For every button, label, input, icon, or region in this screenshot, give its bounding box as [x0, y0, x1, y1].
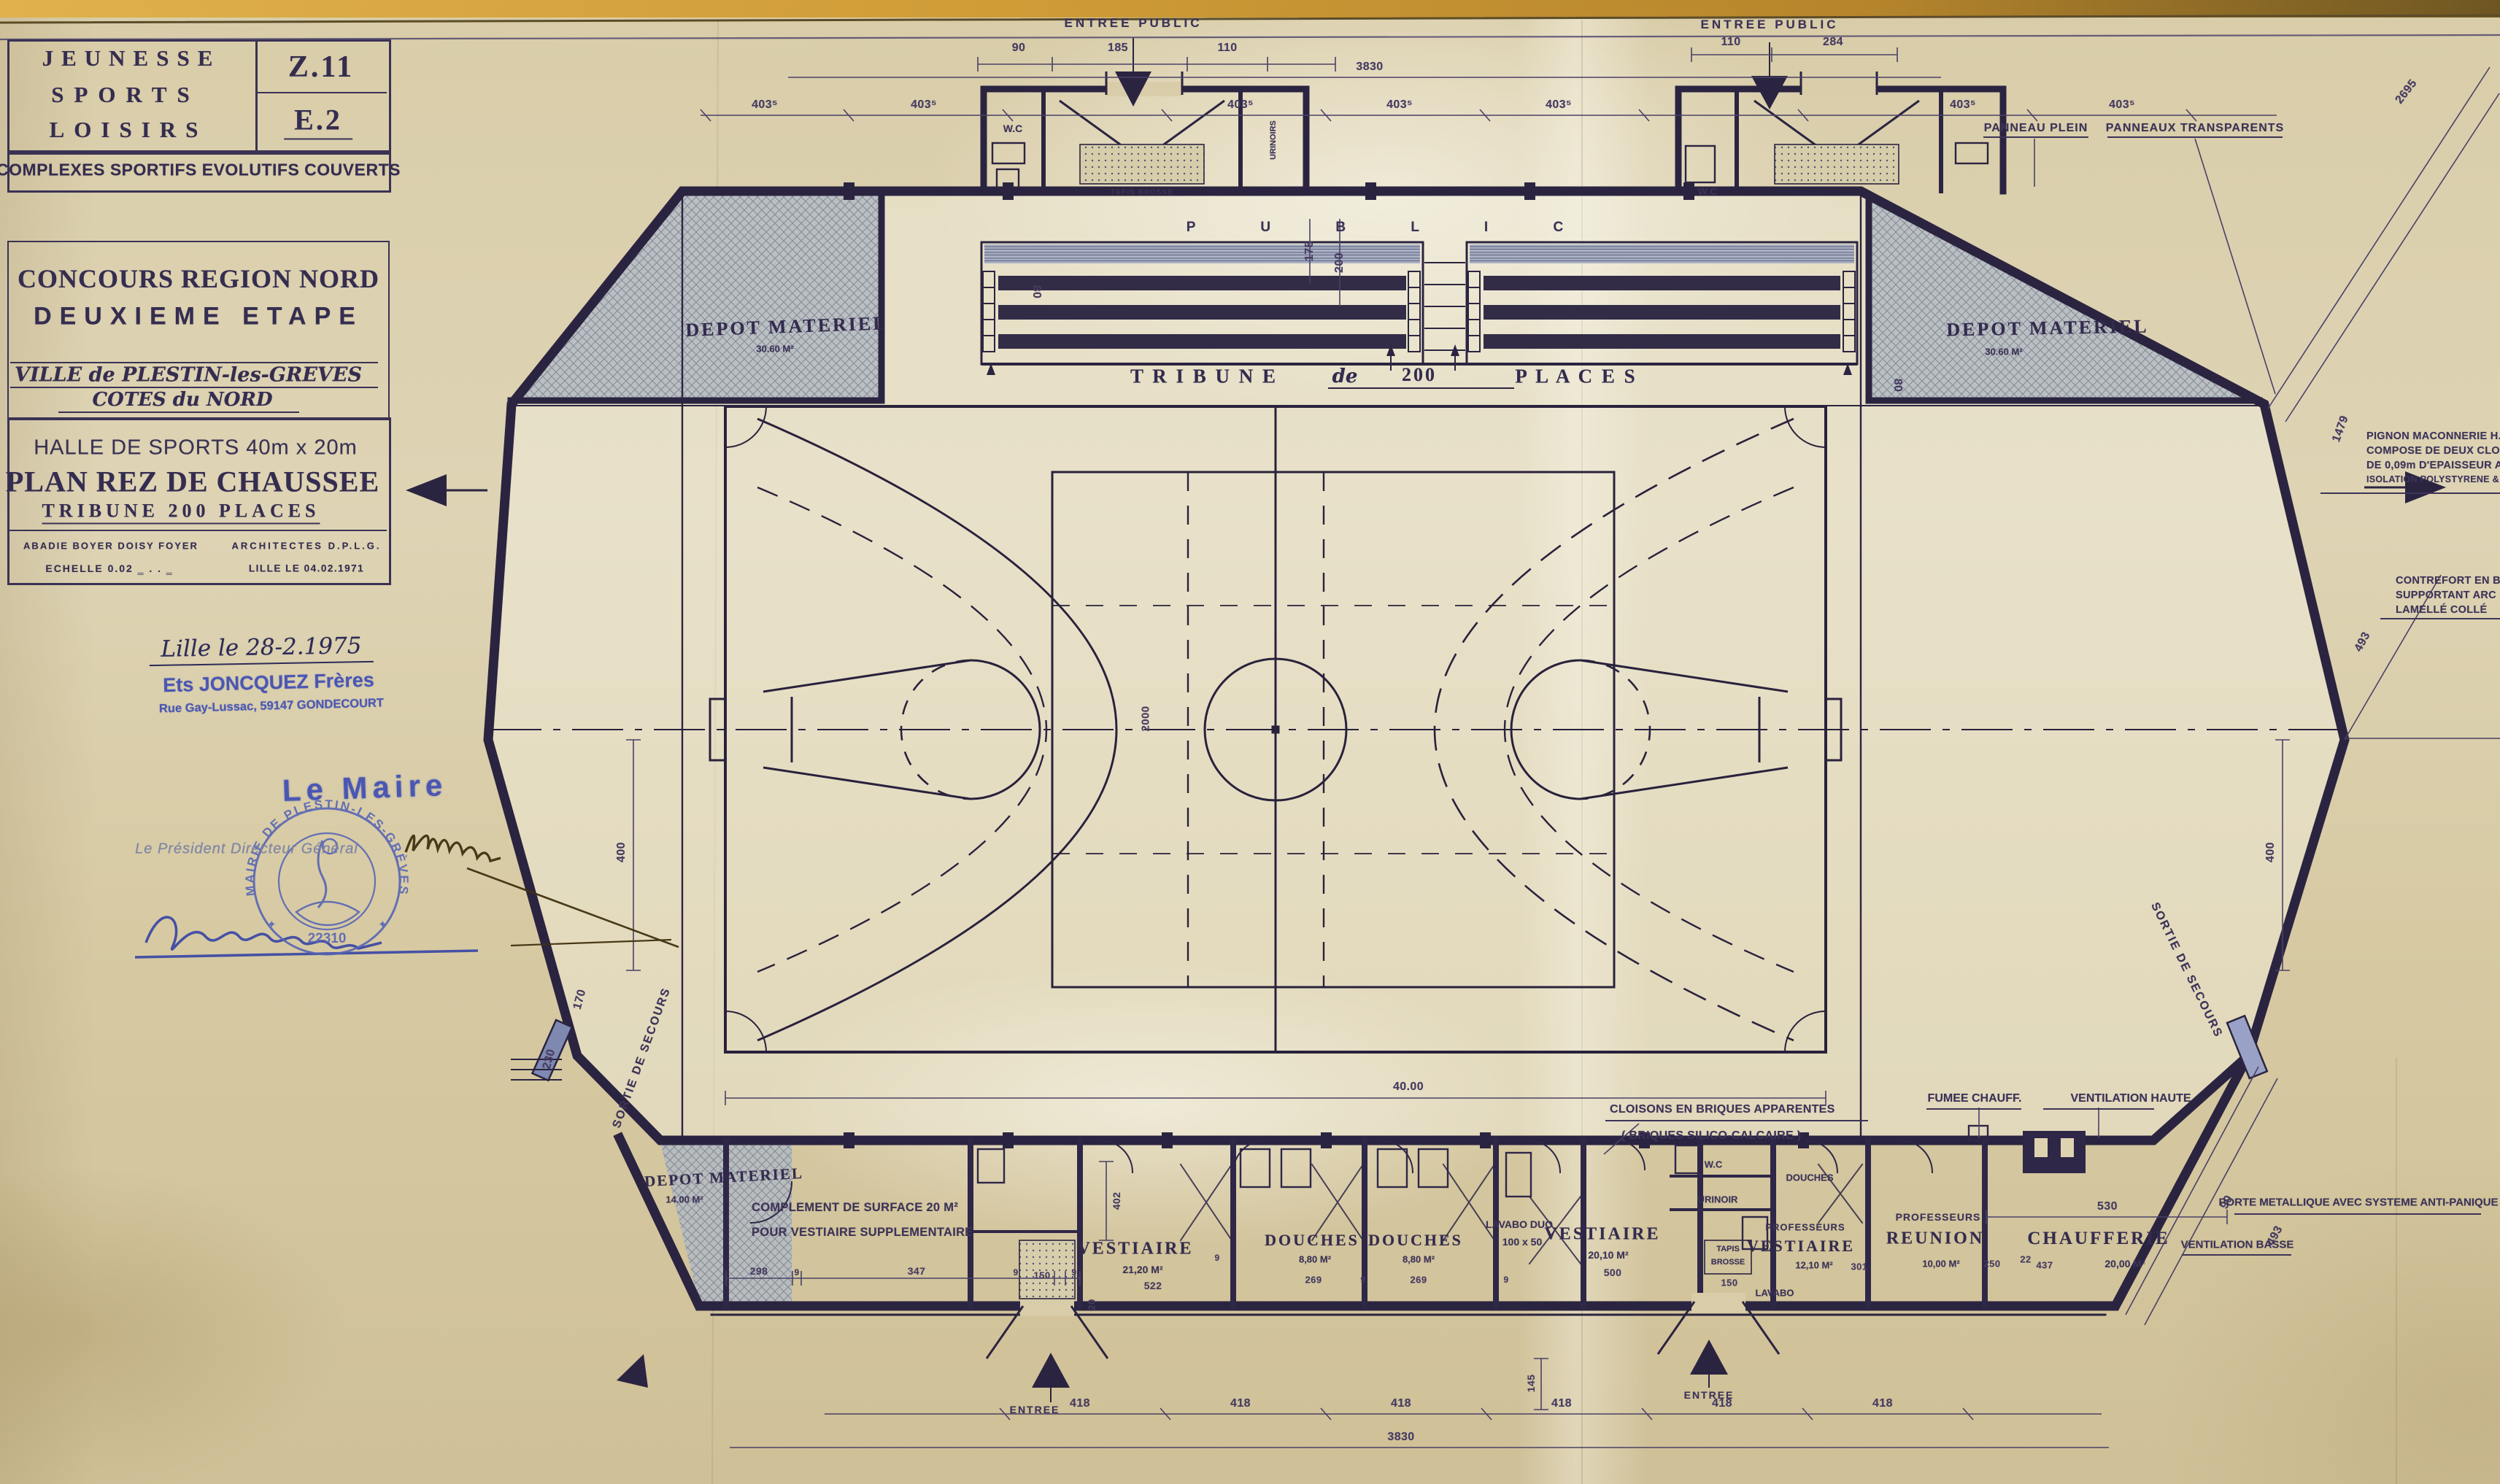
tapis2-line2: BROSSE	[1711, 1258, 1745, 1267]
pignon-note-1: PIGNON MACONNERIE H. 2,50m	[2366, 430, 2500, 442]
tribune-places: P L A C E S	[1515, 366, 1637, 388]
dim-bay-2: 403⁵	[911, 98, 937, 112]
architects-title: ARCHITECTES D.P.L.G.	[232, 541, 382, 552]
prof1-area: 12,10 M²	[1795, 1260, 1832, 1271]
sheet-date: LILLE LE 04.02.1971	[249, 563, 364, 574]
dim-269a: 269	[1305, 1275, 1322, 1286]
vestiaire1-area: 21,20 M²	[1122, 1264, 1162, 1275]
dim-418-5: 418	[1712, 1397, 1732, 1410]
tribune-places-count: 200	[1402, 364, 1437, 386]
complement-note-1: COMPLEMENT DE SURFACE 20 M²	[752, 1201, 958, 1215]
contest-line-1: CONCOURS REGION NORD	[18, 263, 379, 294]
mairie-round-stamp: MAIRIE DE PLESTIN-LES-GRÈVES 22310 ✦ ✦	[243, 797, 411, 954]
dim-437: 437	[2037, 1260, 2053, 1271]
prof2-area: 10,00 M²	[1922, 1259, 1959, 1269]
tribune-row-dim-right: 80	[1891, 379, 1904, 393]
depot-materiel-top-left-area	[515, 194, 881, 401]
contrefort-note-2: SUPPORTANT ARC EN	[2396, 590, 2500, 601]
mayor-label: Le Maire	[282, 768, 448, 808]
depot-bottom-area: 14.00 M²	[665, 1194, 703, 1205]
dim-110: 110	[1217, 42, 1237, 55]
panneau-plein-label: PANNEAU PLEIN	[1984, 122, 2088, 135]
complement-note-2: POUR VESTIAIRE SUPPLEMENTAIRE	[752, 1226, 973, 1240]
dim-269b: 269	[1411, 1275, 1427, 1286]
lavabo-duo-label: LAVABO DUO	[1486, 1218, 1553, 1230]
tribune-de: de	[1332, 366, 1358, 387]
douches2-area: 8,80 M²	[1403, 1254, 1435, 1265]
dim-110-right: 110	[1721, 36, 1740, 49]
vestiaire1-label: VESTIAIRE	[1077, 1240, 1193, 1259]
dim-400-left: 400	[615, 842, 628, 862]
douches1-label: DOUCHES	[1265, 1231, 1359, 1250]
dim-500: 500	[1604, 1267, 1622, 1278]
org-line-3: LOISIRS	[50, 117, 208, 143]
architectural-plan-sheet: MAIRIE DE PLESTIN-LES-GRÈVES 22310 ✦ ✦ J…	[0, 0, 2500, 1484]
wc2-label: W.C	[1705, 1159, 1723, 1170]
contrefort-note-1: CONTREFORT EN B.A.	[2396, 575, 2500, 587]
dim-200: 200	[1333, 252, 1346, 273]
prof2-reunion: REUNION	[1886, 1229, 1984, 1249]
dim-20: 20	[1087, 1299, 1097, 1310]
dim-150: 150	[1034, 1270, 1051, 1281]
pignon-note-3: DE 0,09m D'EPAISSEUR AVEC	[2366, 460, 2500, 471]
pignon-note-2: COMPOSE DE DEUX CLOISONS	[2366, 445, 2500, 457]
city-line-1: VILLE de PLESTIN-les-GREVES	[15, 364, 362, 387]
vent-haute-label: VENTILATION HAUTE	[2070, 1092, 2191, 1105]
dim-total-top: 3830	[1356, 61, 1383, 74]
wc-right-porch: W.C	[1698, 185, 1717, 197]
dim-418-1: 418	[1070, 1397, 1090, 1410]
lavabo-label: LAVABO	[1756, 1288, 1794, 1299]
dim-total-bottom: 3830	[1387, 1431, 1414, 1444]
dim-bay-1: 403⁵	[752, 98, 778, 112]
org-line-1: JEUNESSE	[42, 45, 221, 72]
dim-298: 298	[750, 1265, 768, 1277]
dim-530: 530	[2097, 1200, 2118, 1213]
wc-left-porch: W.C	[1003, 123, 1022, 134]
dim-347: 347	[908, 1265, 926, 1277]
dim-9e: 9	[1360, 1275, 1365, 1285]
tribune-label: T R I B U N E	[1130, 366, 1278, 388]
contrefort-note-3: LAMELLÉ COLLÉ	[2396, 604, 2488, 616]
depot-top-right-area: 30.60 M²	[1985, 347, 2022, 358]
entrance-mat-right	[1775, 144, 1899, 184]
dim-90: 90	[1012, 42, 1026, 55]
tapis2-line1: TAPIS	[1716, 1245, 1740, 1253]
porte-metallique-note: PORTE METALLIQUE AVEC SYSTEME ANTI-PANIQ…	[2218, 1197, 2498, 1209]
sheet-code-top: Z.11	[288, 50, 354, 85]
president-label: Le Président Directeur Général	[135, 841, 358, 858]
depot-top-right-label: DEPOT MATERIEL	[1946, 316, 2149, 341]
dim-9b: 9	[1013, 1267, 1018, 1278]
chaufferie-area: 20,00 M²	[2104, 1258, 2145, 1269]
contest-line-2: DEUXIEME ETAPE	[34, 303, 363, 331]
dim-bay-6: 403⁵	[1950, 98, 1976, 112]
dim-22: 22	[2020, 1254, 2031, 1265]
entree-public-right-label: ENTREE PUBLIC	[1701, 18, 1839, 32]
dim-185: 185	[1108, 42, 1128, 55]
prof1-title: PROFESSEURS	[1765, 1222, 1845, 1233]
svg-text:✦: ✦	[267, 919, 277, 931]
vestiaire2-label: VESTIAIRE	[1544, 1225, 1660, 1245]
dim-284: 284	[1823, 36, 1843, 49]
program-label: COMPLEXES SPORTIFS EVOLUTIFS COUVERTS	[0, 161, 401, 180]
vestiaire2-area: 20,10 M²	[1588, 1249, 1628, 1261]
dim-250: 250	[1984, 1259, 2001, 1269]
dim-bay-4: 403⁵	[1386, 98, 1413, 112]
tapis-brosse-left-porch: TAPIS BROSSE	[1111, 189, 1173, 197]
dim-522: 522	[1144, 1280, 1162, 1291]
dim-418-2: 418	[1230, 1397, 1251, 1410]
dim-145: 145	[1525, 1375, 1537, 1393]
prof2-title: PROFESSEURS	[1896, 1211, 1981, 1223]
project-line-1: HALLE DE SPORTS 40m x 20m	[34, 436, 358, 460]
svg-text:✦: ✦	[378, 919, 387, 931]
dim-418-6: 418	[1872, 1397, 1893, 1410]
depot-top-left-area: 30.60 M²	[756, 344, 793, 355]
urinoir-label: URINOIR	[1698, 1194, 1738, 1205]
architects-names: ABADIE BOYER DOISY FOYER	[23, 541, 198, 552]
dim-bay-5: 403⁵	[1546, 98, 1572, 112]
dim-bay-7: 403⁵	[2109, 98, 2135, 112]
tribune-row-dim-left: 80	[1030, 285, 1043, 299]
project-line-3: TRIBUNE 200 PLACES	[42, 501, 320, 525]
chaufferie-label: CHAUFFERIE	[2027, 1229, 2169, 1249]
lavabo-duo-size: 100 x 50	[1502, 1236, 1543, 1248]
dim-9f: 9	[1503, 1275, 1508, 1285]
dim-9d: 9	[1214, 1253, 1219, 1263]
scale-label: ECHELLE 0.02 ‗ . . ‗	[45, 563, 173, 574]
sheet-code-bottom: E.2	[284, 103, 352, 140]
dim-court-width: 2000	[1140, 706, 1152, 732]
douches2-label: DOUCHES	[1368, 1231, 1463, 1250]
dim-301: 301	[1851, 1261, 1868, 1272]
dim-418-4: 418	[1551, 1397, 1572, 1410]
dim-court-length: 40.00	[1393, 1081, 1424, 1094]
entree-bottom-left: ENTREE	[1010, 1404, 1060, 1415]
dim-bay-3: 403⁵	[1227, 98, 1254, 112]
pignon-note-4: ISOLATION POLYSTYRENE & POLIANE	[2366, 474, 2500, 484]
cloisons-note-1: CLOISONS EN BRIQUES APPARENTES	[1610, 1103, 1835, 1116]
public-label: P U B L I C	[1187, 220, 1594, 236]
urinoirs-label: URINOIRS	[1269, 120, 1278, 160]
dim-150-tapis2: 150	[1721, 1278, 1738, 1288]
dim-402: 402	[1111, 1192, 1122, 1210]
entrance-mat-left	[1080, 144, 1204, 184]
entree-public-left-label: ENTREE PUBLIC	[1065, 16, 1203, 31]
cloisons-note-2: ( BRIQUES SILICO-CALCAIRE )	[1621, 1129, 1801, 1143]
douches-small-label: DOUCHES	[1786, 1172, 1833, 1183]
org-line-2: SPORTS	[51, 82, 200, 108]
prof1-vestiaire: VESTIAIRE	[1747, 1237, 1855, 1256]
project-line-2: PLAN REZ DE CHAUSSEE	[6, 465, 379, 499]
dim-418-3: 418	[1391, 1397, 1411, 1410]
dim-175: 175	[1303, 241, 1316, 261]
panneaux-transparents-label: PANNEAUX TRANSPARENTS	[2106, 122, 2284, 135]
city-line-2: COTES du NORD	[92, 389, 272, 411]
dim-400-right: 400	[2264, 842, 2277, 862]
dim-9a: 9	[794, 1267, 799, 1278]
round-stamp-number: 22310	[308, 931, 347, 946]
dim-9c: 9	[1071, 1267, 1076, 1278]
douches1-area: 8,80 M²	[1299, 1254, 1331, 1265]
fumee-label: FUMEE CHAUFF.	[1928, 1092, 2022, 1105]
handwritten-date: Lille le 28-2.1975	[149, 633, 374, 666]
